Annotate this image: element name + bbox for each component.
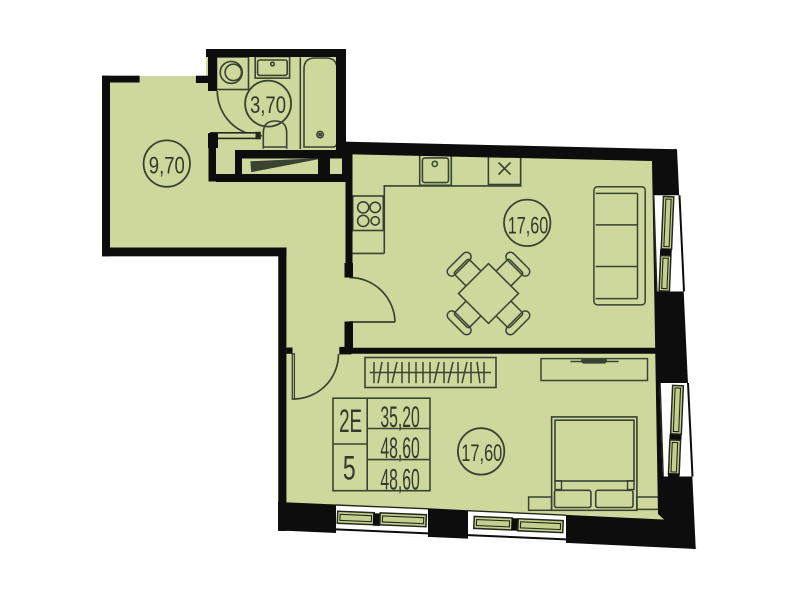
svg-text:17,60: 17,60 — [461, 440, 502, 467]
svg-text:2Е: 2Е — [339, 403, 362, 439]
svg-text:48,60: 48,60 — [380, 464, 419, 497]
svg-text:3,70: 3,70 — [250, 92, 286, 119]
svg-text:17,60: 17,60 — [508, 213, 549, 240]
svg-text:48,60: 48,60 — [380, 432, 419, 465]
svg-text:9,70: 9,70 — [149, 152, 185, 179]
svg-text:5: 5 — [343, 450, 356, 488]
svg-text:35,20: 35,20 — [380, 401, 419, 434]
